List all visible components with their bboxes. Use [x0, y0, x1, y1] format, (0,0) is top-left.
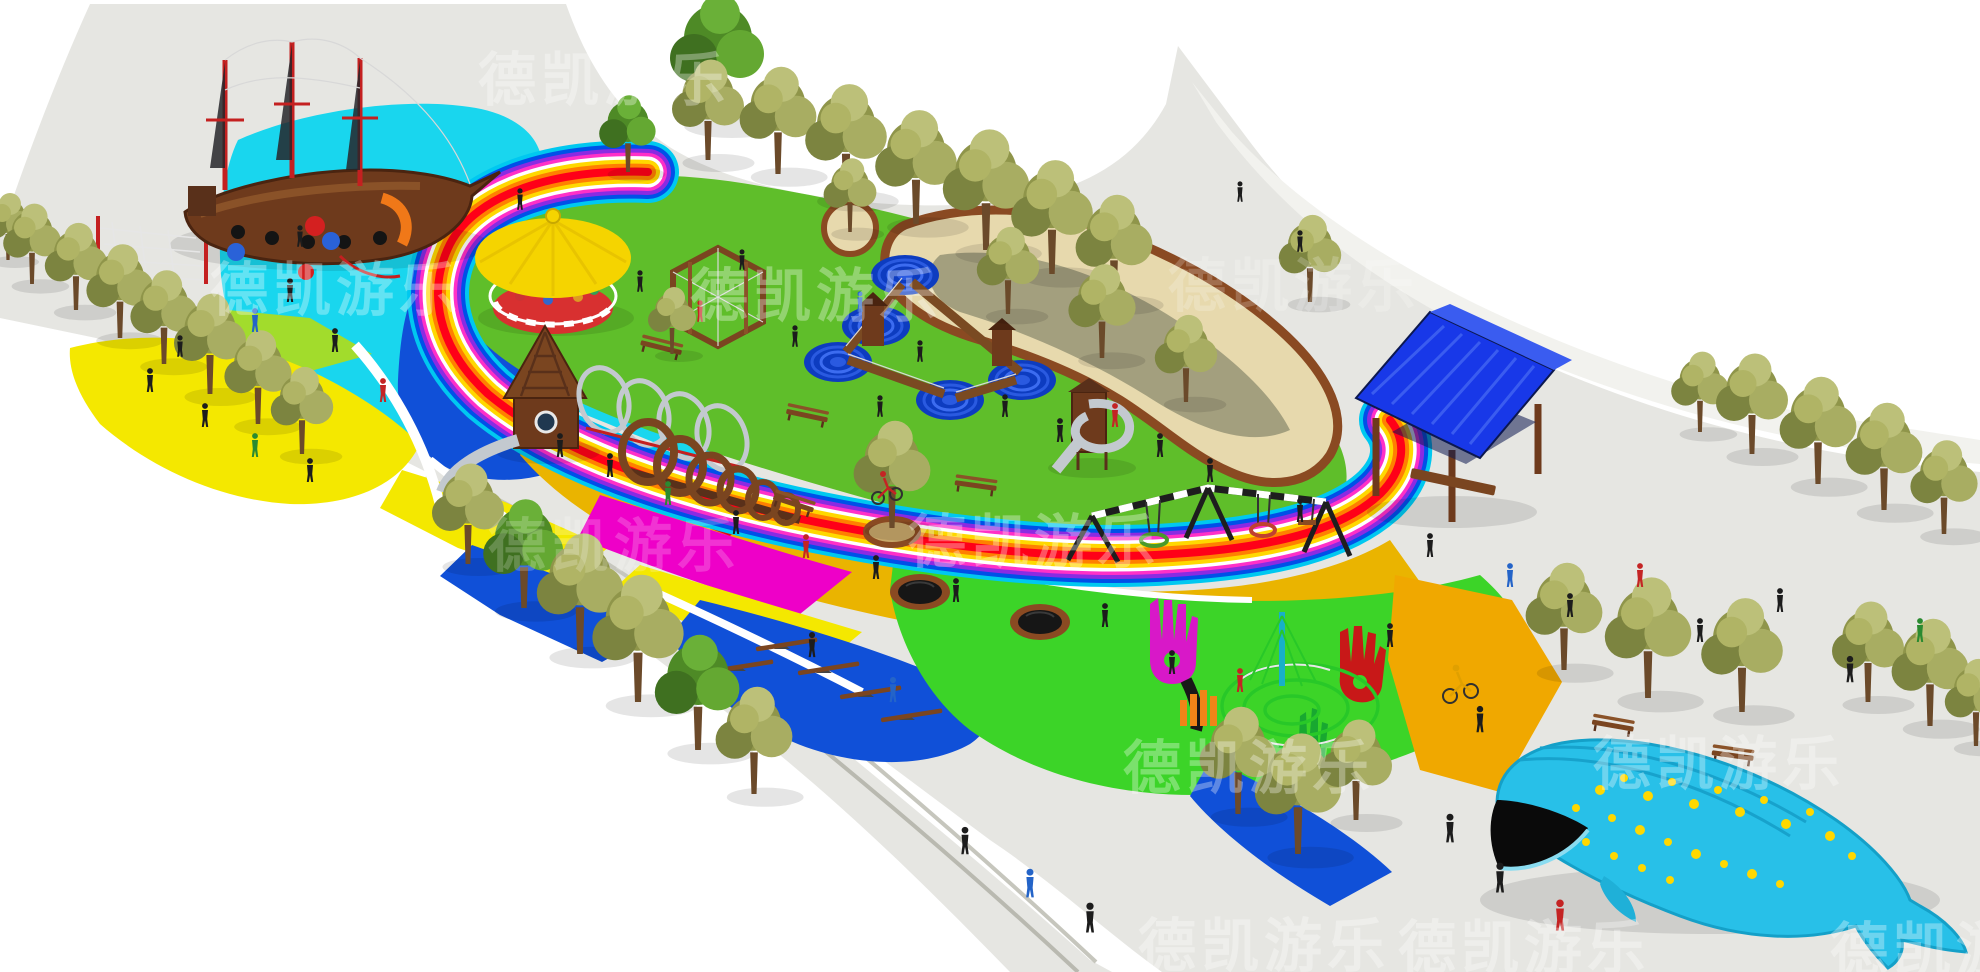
watermark-text: 德凯游乐 — [478, 46, 730, 114]
watermark-text: 德凯游乐 — [1138, 912, 1390, 972]
watermark-text: 德凯游乐 — [1168, 252, 1420, 320]
playground-render: 德凯游乐 德凯游乐 德凯游乐 德凯游乐 德凯游乐 德凯游乐 德凯游乐 德凯游乐 … — [0, 0, 1980, 972]
carousel-finial — [546, 209, 560, 223]
watermark-text: 德凯游乐 — [210, 256, 462, 324]
watermark-text: 德凯游乐 — [690, 262, 942, 330]
watermark-text: 德凯游乐 — [908, 508, 1160, 576]
playground-aerial-rendering: 德凯游乐 德凯游乐 德凯游乐 德凯游乐 德凯游乐 德凯游乐 德凯游乐 德凯游乐 … — [0, 0, 1980, 972]
watermark-text: 德凯游乐 — [1830, 916, 1980, 972]
swing-seat — [1298, 520, 1316, 525]
ship-stern-cabin — [188, 186, 216, 216]
watermark-text: 德凯游乐 — [488, 512, 740, 580]
watermark-text: 德凯游乐 — [1123, 734, 1375, 802]
tower-porthole — [536, 412, 556, 432]
watermark-text: 德凯游乐 — [1593, 730, 1845, 798]
watermark-text: 德凯游乐 — [1398, 914, 1650, 972]
